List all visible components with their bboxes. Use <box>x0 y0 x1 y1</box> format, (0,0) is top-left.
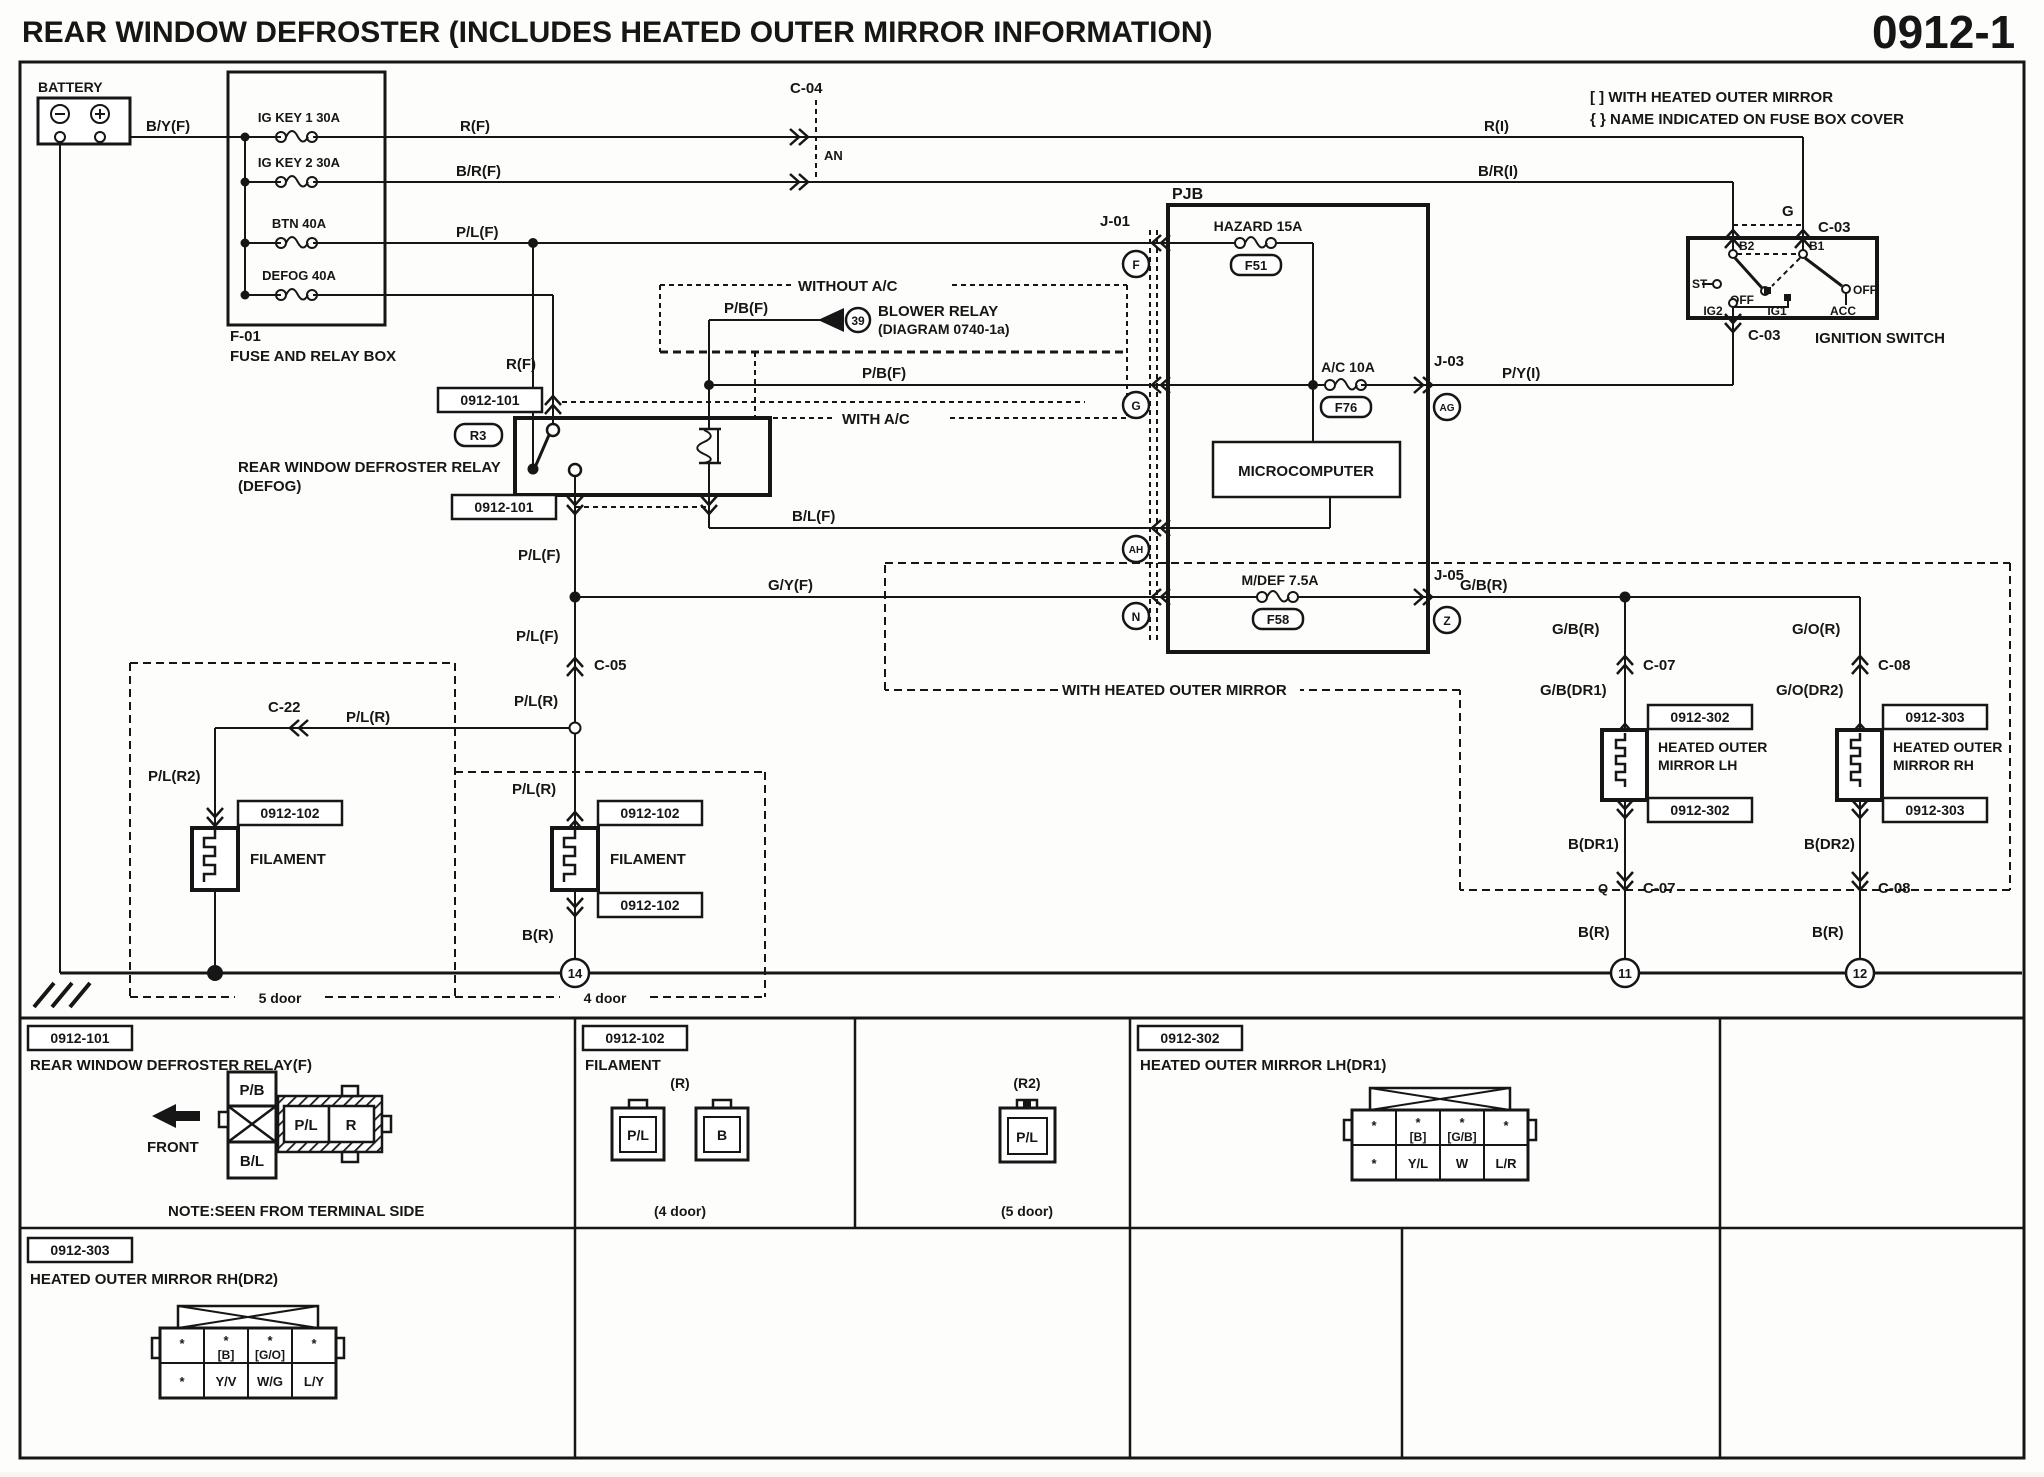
wire-label: B/Y(F) <box>146 118 190 135</box>
wire-label: B/R(I) <box>1478 163 1518 180</box>
wire-label: G/O(DR2) <box>1776 682 1844 699</box>
fuse-relay-box: IG KEY 1 30A IG KEY 2 30A BTN 40A DEFOG … <box>228 72 396 365</box>
relay-name: REAR WINDOW DEFROSTER RELAY <box>238 459 501 476</box>
table-note: NOTE:SEEN FROM TERMINAL SIDE <box>168 1203 424 1220</box>
pjb-label: PJB <box>1172 186 1203 203</box>
caption: (5 door) <box>1001 1203 1053 1219</box>
junctions <box>207 238 1631 981</box>
wire-label: B/R(F) <box>456 163 501 180</box>
ref-label: 0912-302 <box>1670 802 1729 818</box>
terminal-letter: AG <box>1440 403 1455 414</box>
terminal-label: B2 <box>1739 239 1755 253</box>
conn-label: C-08 <box>1878 657 1911 674</box>
circuit-number: 39 <box>851 314 865 328</box>
front-label: FRONT <box>147 1139 199 1156</box>
note-fuse-cover: { } NAME INDICATED ON FUSE BOX COVER <box>1590 111 1904 128</box>
filament-center: FILAMENT <box>552 828 686 890</box>
wire-label: R(F) <box>506 356 536 373</box>
ground-symbol <box>34 983 90 1007</box>
fuse-label: DEFOG 40A <box>262 268 336 283</box>
terminal-letter: F <box>1132 258 1139 272</box>
terminal-label: IG1 <box>1767 304 1787 318</box>
page-number: 0912-1 <box>1872 6 2015 58</box>
ref-label: 0912-101 <box>474 499 533 515</box>
wire-labels: B/Y(F) R(F) R(I) B/R(F) B/R(I) P/L(F) R(… <box>146 118 1855 944</box>
terminal-letter: Z <box>1443 614 1450 628</box>
table-0912-102: 0912-102 FILAMENT (R) P/L B (4 door) (R2… <box>583 1026 1055 1219</box>
ground-number: 11 <box>1618 966 1632 981</box>
conn-label: J-05 <box>1434 567 1464 584</box>
ref-label: 0912-303 <box>1905 709 1964 725</box>
door5-label: 5 door <box>259 990 302 1006</box>
fuse-label: IG KEY 2 30A <box>258 155 341 170</box>
terminal-label: IG2 <box>1703 304 1723 318</box>
grid-cell: W/G <box>257 1374 283 1389</box>
table-tag: 0912-101 <box>50 1030 109 1046</box>
pin-label: R <box>346 1117 357 1134</box>
mirror-lh-label: HEATED OUTER <box>1658 739 1767 755</box>
wire-label: P/Y(I) <box>1502 365 1540 382</box>
conn-label: C-07 <box>1643 880 1676 897</box>
diagram-canvas: REAR WINDOW DEFROSTER (INCLUDES HEATED O… <box>0 0 2044 1472</box>
mirror-lh-label2: MIRROR LH <box>1658 757 1737 773</box>
conn-label: C-05 <box>594 657 627 674</box>
pin-label: B <box>717 1127 727 1143</box>
terminal-letter: N <box>1132 610 1141 624</box>
wire-lines <box>60 137 2022 973</box>
fuse-label: HAZARD 15A <box>1214 218 1303 234</box>
table-tag: 0912-303 <box>50 1242 109 1258</box>
pin-label: P/L <box>1016 1129 1038 1145</box>
pin-label: P/L <box>294 1117 317 1134</box>
pin-label: B/L <box>240 1153 264 1170</box>
wire-label: G/B(R) <box>1460 577 1508 594</box>
conn-label: AN <box>824 148 843 163</box>
table-tag: 0912-302 <box>1160 1030 1219 1046</box>
conn-label: C-04 <box>790 80 823 97</box>
grid-cell: Y/V <box>216 1374 237 1389</box>
wire-label: P/L(R) <box>346 709 390 726</box>
wire-label: P/B(F) <box>862 365 906 382</box>
wire-label: P/L(F) <box>516 628 559 645</box>
grid-cell-sub: [G/B] <box>1447 1130 1476 1144</box>
note-heated-mirror: [ ] WITH HEATED OUTER MIRROR <box>1590 89 1833 106</box>
relay-id: R3 <box>470 428 487 443</box>
terminal-letter: G <box>1131 399 1140 413</box>
fuse-label: IG KEY 1 30A <box>258 110 341 125</box>
wire-label: R(I) <box>1484 118 1509 135</box>
terminal-label: ACC <box>1830 304 1856 318</box>
fuse-id: F51 <box>1245 258 1267 273</box>
wire-label: G/B(DR1) <box>1540 682 1607 699</box>
wire-label: P/L(F) <box>518 547 561 564</box>
wire-label: G/Y(F) <box>768 577 813 594</box>
pin-label: P/B <box>239 1082 264 1099</box>
wiring-diagram-page: REAR WINDOW DEFROSTER (INCLUDES HEATED O… <box>0 0 2044 1472</box>
wire-label: G <box>1782 203 1794 220</box>
fuse-id: F76 <box>1335 400 1357 415</box>
door4-label: 4 door <box>584 990 627 1006</box>
defroster-relay: R3 REAR WINDOW DEFROSTER RELAY (DEFOG) <box>238 418 770 495</box>
mirror-rh-label2: MIRROR RH <box>1893 757 1974 773</box>
ref-label: 0912-102 <box>620 805 679 821</box>
pin-label: P/L <box>627 1127 649 1143</box>
relay-name-2: (DEFOG) <box>238 478 301 495</box>
filament-label: FILAMENT <box>250 851 326 868</box>
variant-label: (R2) <box>1013 1075 1040 1091</box>
wire-label: P/B(F) <box>724 300 768 317</box>
caption: (4 door) <box>654 1203 706 1219</box>
ignition-switch: B2 B1 OFF OFF ST IG2 IG1 ACC IGNITION SW… <box>1688 238 1945 347</box>
battery-label: BATTERY <box>38 79 103 95</box>
pjb-box: PJB HAZARD 15A F51 A/C 10A F76 M/DEF 7.5… <box>1168 186 1428 652</box>
filament-label: FILAMENT <box>610 851 686 868</box>
heated-mirror-rh: HEATED OUTER MIRROR RH <box>1837 730 2002 800</box>
grid-cell: Y/L <box>1408 1156 1428 1171</box>
with-heated-mirror-label: WITH HEATED OUTER MIRROR <box>1062 682 1287 699</box>
conn-label: C-08 <box>1878 880 1911 897</box>
grid-cell-sub: [G/O] <box>255 1348 285 1362</box>
grid-cell: L/Y <box>304 1374 325 1389</box>
ref-label: 0912-302 <box>1670 709 1729 725</box>
ref-label: 0912-303 <box>1905 802 1964 818</box>
conn-label: C-22 <box>268 699 301 716</box>
heated-mirror-lh: HEATED OUTER MIRROR LH <box>1602 730 1767 800</box>
grid-cell-sub: [B] <box>1410 1130 1427 1144</box>
grid-cell: L/R <box>1496 1156 1518 1171</box>
wire-label: B(R) <box>1578 924 1610 941</box>
filament-left: FILAMENT <box>192 828 326 890</box>
fusebox-id: F-01 <box>230 328 261 345</box>
table-0912-303: 0912-303 HEATED OUTER MIRROR RH(DR2) * *… <box>28 1238 344 1398</box>
table-tag: 0912-102 <box>605 1030 664 1046</box>
wire-label: B(DR1) <box>1568 836 1619 853</box>
mirror-rh-label: HEATED OUTER <box>1893 739 2002 755</box>
terminal-letter: AH <box>1129 545 1143 556</box>
page-title: REAR WINDOW DEFROSTER (INCLUDES HEATED O… <box>22 16 1213 49</box>
wire-label: B(R) <box>522 927 554 944</box>
wire-label: R(F) <box>460 118 490 135</box>
table-0912-302: 0912-302 HEATED OUTER MIRROR LH(DR1) * *… <box>1138 1026 1536 1180</box>
ref-label: 0912-102 <box>260 805 319 821</box>
table-title: FILAMENT <box>585 1057 661 1074</box>
conn-label: J-01 <box>1100 213 1130 230</box>
microcomputer-label: MICROCOMPUTER <box>1238 463 1374 480</box>
fuse-label: M/DEF 7.5A <box>1241 572 1318 588</box>
fusebox-name: FUSE AND RELAY BOX <box>230 348 396 365</box>
wire-label: B/L(F) <box>792 508 835 525</box>
wire-label: P/L(R2) <box>148 768 201 785</box>
without-ac-label: WITHOUT A/C <box>798 278 898 295</box>
wire-label: P/L(R) <box>514 693 558 710</box>
ref-label: 0912-102 <box>620 897 679 913</box>
table-title: HEATED OUTER MIRROR LH(DR1) <box>1140 1057 1386 1074</box>
wire-label: P/L(R) <box>512 781 556 798</box>
blower-relay-label: BLOWER RELAY <box>878 303 998 320</box>
grid-cell: W <box>1456 1156 1469 1171</box>
table-0912-101: 0912-101 REAR WINDOW DEFROSTER RELAY(F) … <box>28 1026 424 1220</box>
wire-label: B(R) <box>1812 924 1844 941</box>
wire-label: B(DR2) <box>1804 836 1855 853</box>
variant-label: (R) <box>670 1075 689 1091</box>
terminal-label: Q <box>1598 881 1608 896</box>
battery: BATTERY <box>38 79 130 144</box>
conn-label: J-03 <box>1434 353 1464 370</box>
ground-number: 12 <box>1853 966 1867 981</box>
blower-relay-diagram: (DIAGRAM 0740-1a) <box>878 321 1009 337</box>
fuse-id: F58 <box>1267 612 1289 627</box>
conn-label: C-03 <box>1748 327 1781 344</box>
fuse-label: BTN 40A <box>272 216 327 231</box>
position-label: OFF <box>1853 283 1877 297</box>
fuse-label: A/C 10A <box>1321 359 1375 375</box>
conn-label: C-03 <box>1818 219 1851 236</box>
wire-label: P/L(F) <box>456 224 499 241</box>
with-ac-label: WITH A/C <box>842 411 910 428</box>
ground-number: 14 <box>568 966 583 981</box>
table-title: HEATED OUTER MIRROR RH(DR2) <box>30 1271 278 1288</box>
terminal-label: B1 <box>1809 239 1825 253</box>
wire-label: G/B(R) <box>1552 621 1600 638</box>
ignition-switch-label: IGNITION SWITCH <box>1815 330 1945 347</box>
wire-label: G/O(R) <box>1792 621 1840 638</box>
ref-label: 0912-101 <box>460 392 519 408</box>
grid-cell-sub: [B] <box>218 1348 235 1362</box>
conn-label: C-07 <box>1643 657 1676 674</box>
